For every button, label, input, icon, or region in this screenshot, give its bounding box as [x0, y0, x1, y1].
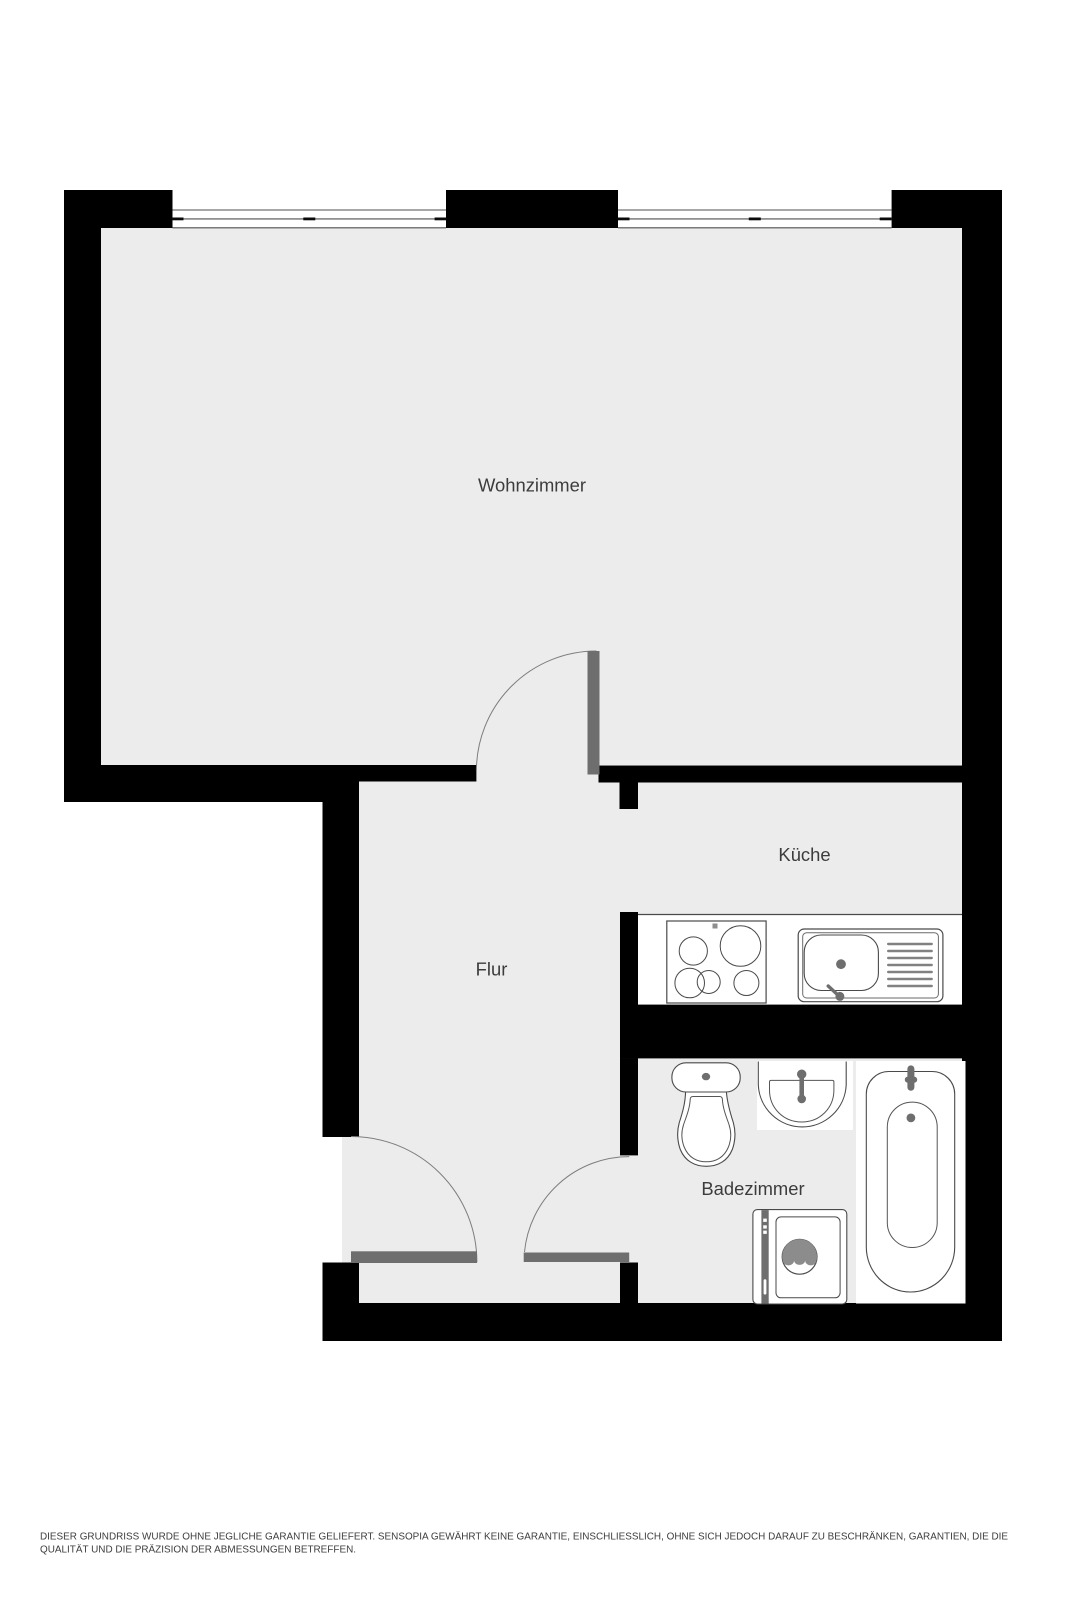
- svg-text:Küche: Küche: [778, 844, 830, 865]
- svg-text:DIESER GRUNDRISS WURDE OHNE JE: DIESER GRUNDRISS WURDE OHNE JEGLICHE GAR…: [40, 1531, 1008, 1543]
- svg-text:Badezimmer: Badezimmer: [701, 1178, 804, 1199]
- svg-text:QUALITÄT UND DIE PRÄZISION DER: QUALITÄT UND DIE PRÄZISION DER ABMESSUNG…: [40, 1544, 356, 1556]
- svg-text:Wohnzimmer: Wohnzimmer: [478, 475, 586, 496]
- svg-text:Flur: Flur: [476, 959, 508, 980]
